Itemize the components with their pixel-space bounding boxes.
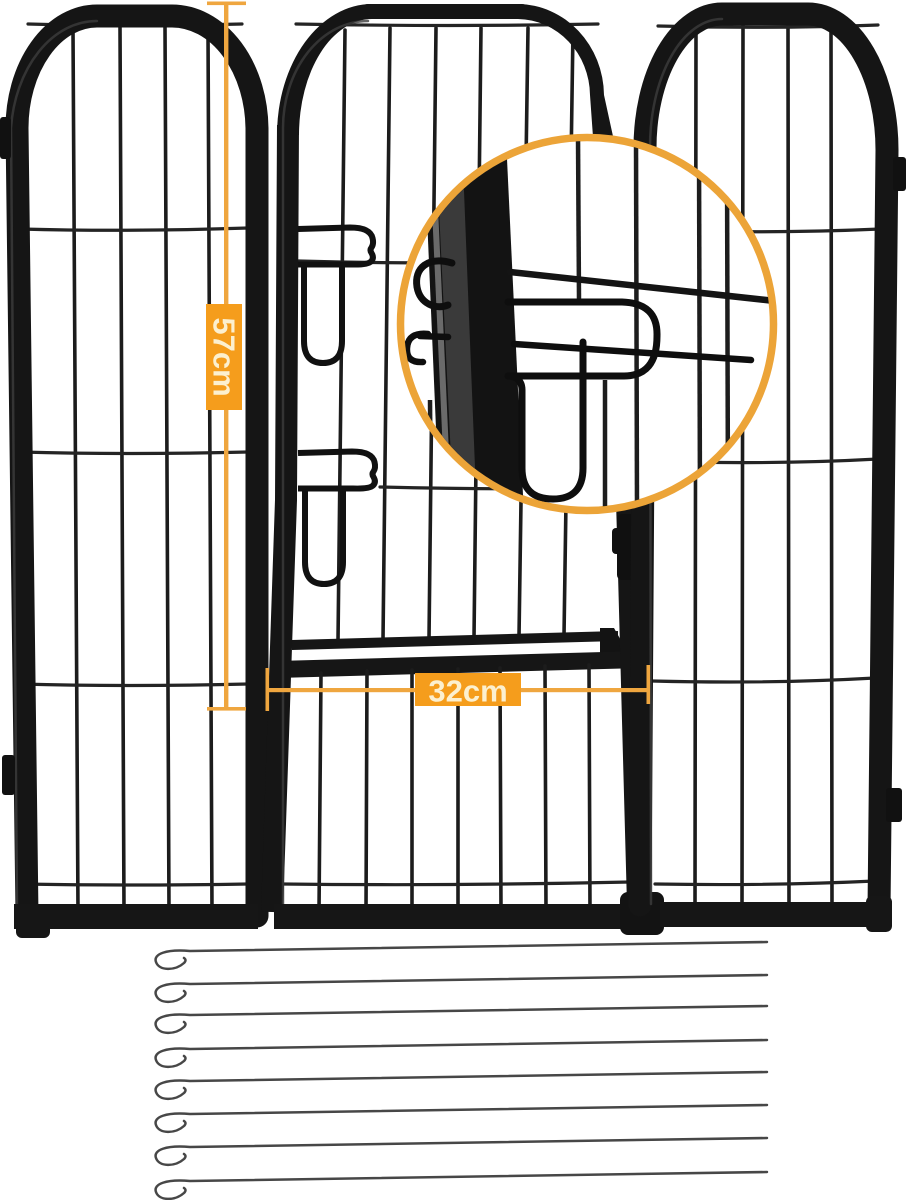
svg-text:57cm: 57cm xyxy=(207,317,242,396)
svg-text:32cm: 32cm xyxy=(428,674,507,709)
